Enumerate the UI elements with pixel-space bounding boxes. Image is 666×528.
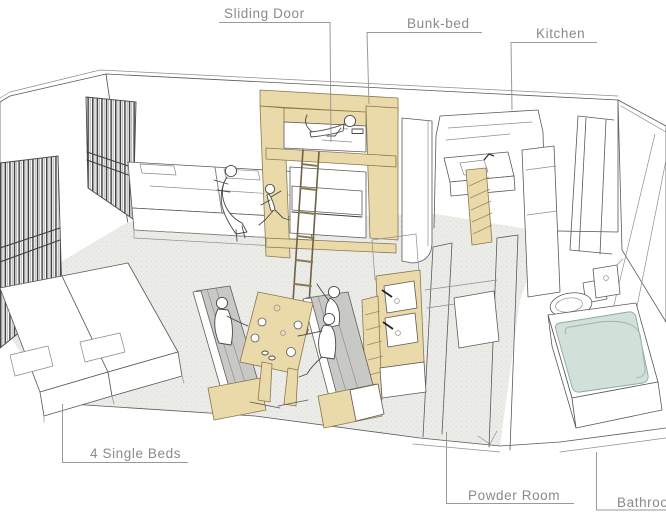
curved-partition	[402, 118, 432, 263]
bunk-right-pillar	[366, 106, 398, 240]
axonometric-room-sketch: Sliding Door Bunk-bed Kitchen 4 Single B…	[0, 0, 666, 528]
vanity-sink	[384, 281, 417, 313]
top-bunk-mattress	[284, 122, 366, 152]
vanity-cabinet	[380, 362, 426, 398]
vanity-sink	[385, 313, 418, 347]
label-bathroom-text: Bathroom	[617, 495, 666, 510]
label-4-single-beds: 4 Single Beds	[63, 404, 189, 463]
bench-end-panel	[350, 384, 384, 421]
label-sliding-door-text: Sliding Door	[224, 6, 305, 21]
label-bunk-bed-text: Bunk-bed	[407, 16, 470, 31]
lower-bunk-mattress	[292, 186, 362, 215]
toilet-cistern	[593, 265, 620, 298]
right-wall	[618, 100, 666, 322]
label-powder-room-text: Powder Room	[468, 488, 560, 503]
powder-room-low-wall	[454, 291, 499, 348]
kitchen-tall-cabinet	[522, 146, 560, 297]
bathtub	[548, 303, 662, 428]
label-4-single-beds-text: 4 Single Beds	[90, 446, 181, 461]
label-kitchen-text: Kitchen	[536, 26, 585, 41]
bunk-bed-structure	[260, 90, 398, 258]
label-bathroom: Bathroom	[597, 452, 666, 510]
pillow	[140, 164, 176, 175]
floor-plan-sketch-page: Sliding Door Bunk-bed Kitchen 4 Single B…	[0, 0, 666, 528]
